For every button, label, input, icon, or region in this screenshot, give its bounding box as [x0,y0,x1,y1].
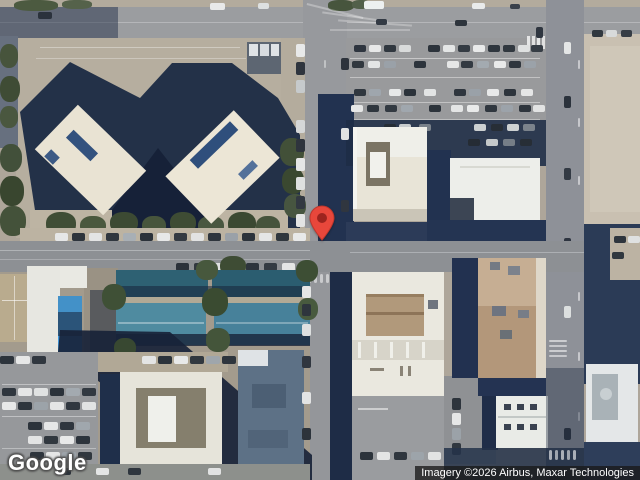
cars-ne-row [428,45,440,52]
cars-ne-row [368,61,380,68]
cars-c-col [452,413,461,425]
building-c-roofmark [400,366,403,376]
building-c-arcade [352,340,444,360]
cars-ne-row [401,105,413,112]
roof-ac-unit [518,310,529,318]
cars-ne-row [389,89,401,96]
nw-parking-stripe [36,58,246,59]
arcade-column [422,342,425,358]
tree [0,76,20,102]
building-sw-court-tab [148,396,176,442]
roof-vent [517,404,524,410]
rooftop-unit [260,44,269,56]
crosswalk-right-mid [549,350,567,352]
cars-ne-row [367,105,379,112]
car [536,27,543,38]
cars-center-east [341,58,349,70]
crosswalk-center-south [320,274,323,283]
crosswalk-right-bottom [567,450,570,460]
cars-ne-row [369,89,381,96]
crosswalk-right-mid [549,345,567,347]
lane-dashes-right [578,60,580,69]
cars-ne-row [458,45,470,52]
cars-sw-row [142,356,156,364]
cars-dirt-lot [592,30,603,37]
cars-ne-row [468,139,480,146]
attribution-text: Imagery ©2026 Airbus, Maxar Technologies [421,467,634,479]
cars-center-west [296,62,305,75]
cars-midroad-north [123,233,136,241]
cars-ne-row [474,124,486,131]
cars-sw-row [66,388,80,396]
ne-parking-stripe [350,102,540,103]
cars-ne-row [494,61,506,68]
crosswalk-right-bottom [561,450,564,460]
nw-parking-stripe [40,47,240,48]
building-c-roof-edge [366,294,424,297]
building-tan-east-edge [536,258,546,378]
building-se-white-mark [600,388,612,400]
cars-sw-row [34,402,48,410]
crosswalk-right-bottom [549,450,552,460]
car [510,4,520,9]
cars-alley [128,468,141,475]
cars-sw-row [50,388,64,396]
cars-center-south [302,428,311,440]
cars-midroad-north [174,233,187,241]
cars-alley [96,468,109,475]
cars-midroad-north [225,233,238,241]
arcade-column [406,342,409,358]
tree [0,176,24,206]
cars-center-east [341,200,349,212]
cars-midroad-north [276,233,289,241]
cars-sw-row [0,356,14,364]
car [364,1,384,9]
car [38,12,52,19]
lane-dashes-right [578,176,580,185]
cars-alley [208,468,221,475]
cars-ne-row [467,105,479,112]
cars-se-row [614,236,626,243]
cars-ne-row [491,124,503,131]
court-line [216,322,308,324]
cars-sw-row [158,356,172,364]
cars-sw-row [28,436,42,444]
cars-ne-row [507,124,519,131]
cars-c-col [452,428,461,440]
cars-ne-row [487,89,499,96]
cars-center-south [302,286,311,298]
tree [14,0,58,11]
cars-dirt-lot [606,30,617,37]
cars-ne-row [351,105,363,112]
cars-ne-row [443,45,455,52]
shadow-ne-b-south [427,220,546,242]
cars-sw-row [28,422,42,430]
cars-ne-row [447,61,459,68]
arcade-column [358,342,361,358]
building-tan-low [478,306,542,378]
cars-sw-row [174,356,188,364]
building-sw-blue-roof [238,350,268,366]
cars-center-west [296,44,305,57]
cars-center-south [302,324,311,336]
road-main-laneline [0,259,310,260]
cars-right-road [564,42,571,54]
cars-right-road [564,306,571,318]
cars-ne-row [518,45,530,52]
cars-ne-row [509,61,521,68]
cars-ne-row [385,105,397,112]
cars-center-west [296,196,305,209]
plaza-c-mark [358,408,388,410]
court-line [118,322,204,324]
crosswalk-right-mid [549,340,567,342]
car [210,3,225,10]
cars-center-west [296,120,305,133]
cars-sw-row [60,436,74,444]
cars-ne-row [469,89,481,96]
cars-ne-row [451,105,463,112]
arcade-column [390,342,393,358]
cars-center-west [296,214,305,227]
cars-ne-row [501,105,513,112]
court-sw-tan-line [2,300,28,301]
tree [206,328,230,352]
sw-parking-stripe [2,448,96,449]
building-sw-blue-detail [252,384,286,408]
google-logo[interactable]: Google [8,450,87,476]
cars-midroad-north [191,233,204,241]
cars-ne-row [354,89,366,96]
cars-c-bottom [428,452,441,460]
ne-parking-stripe [350,58,540,59]
cars-center-south [302,392,311,404]
tree [296,260,318,282]
building-c-roofmark [408,366,411,376]
shadow-tan-west [452,258,478,378]
building-ne-a-west-edge [353,127,357,221]
crosswalk-center-south [326,274,329,283]
cars-sw-row [60,422,74,430]
roof-vent [517,424,524,430]
building-c-roof-structure [366,294,424,336]
cars-ne-row [519,105,531,112]
imagery-attribution: Imagery ©2026 Airbus, Maxar Technologies [415,466,640,480]
cars-sw-row [206,356,220,364]
rooftop-unit [249,44,258,56]
cars-ne-row [521,89,533,96]
roof-ac-unit [500,330,512,339]
cars-c-bottom [360,452,373,460]
building-sw-blue [238,350,304,476]
cars-ne-row [429,105,441,112]
cars-sw-row [66,402,80,410]
car [472,3,485,9]
roof-vent [504,424,511,430]
cars-midroad-north [242,233,255,241]
cars-midroad-north [208,233,221,241]
road-main-laneline [0,250,310,251]
building-c-roofmark [370,368,384,371]
shadow-tan-south [478,378,546,396]
roof-vent [530,404,537,410]
building-c-roof-ridge [366,312,424,315]
map-canvas[interactable]: Google Imagery ©2026 Airbus, Maxar Techn… [0,0,640,480]
cars-center-south [302,356,311,368]
cars-sw-row [16,356,30,364]
cars-ne-row [454,89,466,96]
crosswalk-right-bottom [555,450,558,460]
cars-ne-row [520,139,532,146]
cars-midroad-north [259,233,272,241]
cars-sw-row [76,422,90,430]
building-c-roof-unit [428,300,438,309]
roof-vent [530,424,537,430]
roof-ac-unit [492,306,506,316]
cars-ne-row [486,139,498,146]
tree [102,284,126,310]
roof-ac-unit [508,266,520,275]
cars-ne-row [473,45,485,52]
car [455,20,467,26]
shadow-road-right-south [546,368,584,480]
building-sw-white [27,266,60,356]
sw-parking-stripe [2,384,96,385]
cars-ne-row [352,61,364,68]
cars-c-col [452,398,461,410]
arcade-column [374,342,377,358]
location-pin-icon[interactable] [309,205,335,241]
cars-sw-row [76,436,90,444]
building-ne-a-court-white [370,152,386,178]
cars-center-east [341,128,349,140]
cars-sw-row [34,388,48,396]
court-sw-tan [0,274,30,342]
cars-se-row [612,252,624,259]
cars-sw-row [44,422,58,430]
lane-dashes-right [578,118,580,127]
car [258,3,269,9]
cars-center-west [296,80,305,93]
cars-ne-row [533,105,545,112]
cars-ne-row [461,61,473,68]
court-sw-tan-line [14,276,15,340]
lane-dashes-right [578,352,580,361]
cars-sw-row [190,356,204,364]
building-ne-b-notch [450,198,474,220]
cars-se-row [628,236,640,243]
crosswalk-right-bottom [573,450,576,460]
cars-ne-row [524,61,536,68]
lot-dirt-east-inner [590,46,640,212]
tree [0,144,22,172]
cars-midroad-north [89,233,102,241]
cars-ne-row [354,45,366,52]
cars-sw-row [32,356,46,364]
cars-midroad-north [157,233,170,241]
ne-parking-stripe [350,77,540,78]
cars-center-west [296,158,305,171]
building-sw-blue-detail [248,430,288,448]
cars-midroad-north [55,233,68,241]
cars-center-west [296,139,305,152]
building-ne-b-roofline [460,166,530,168]
tree [202,288,228,316]
road-top-shadow [0,7,118,38]
cars-sw-row [2,402,16,410]
cars-ne-row [488,45,500,52]
cars-ne-row [523,124,535,131]
cars-ne-row [485,105,497,112]
cars-center-south [302,304,311,316]
cars-midroad-north [140,233,153,241]
sw-parking-stripe [2,416,96,417]
crosswalk-right-mid [549,355,567,357]
cars-ne-row [384,45,396,52]
cars-midroad-north [293,233,306,241]
cars-right-road [564,96,571,108]
cars-midroad-north [106,233,119,241]
building-c-small-line [498,416,546,418]
cars-midroad-north [72,233,85,241]
lane-dashes-right [578,292,580,301]
cars-dirt-lot [621,30,632,37]
tree [0,106,18,128]
cars-ne-row [503,45,515,52]
cars-c-bottom [377,452,390,460]
roof-vent [504,404,511,410]
tree [62,0,92,9]
cars-sw-row [18,388,32,396]
cars-ne-row [369,45,381,52]
cars-sw-row [18,402,32,410]
cars-ne-row [384,61,396,68]
tree [0,44,18,68]
cars-c-bottom [394,452,407,460]
cars-ne-row [399,45,411,52]
building-ne-a-top [353,127,427,157]
cars-sw-row [50,402,64,410]
roof-ac-unit [490,262,500,270]
car [376,19,387,25]
cars-sw-row [82,402,96,410]
cars-right-road [564,168,571,180]
cars-ne-row [504,89,516,96]
cars-center-west [296,177,305,190]
cars-ne-row [404,89,416,96]
rooftop-unit [271,44,279,56]
cars-c-bottom [411,452,424,460]
shadow-sw-court-west [100,374,120,466]
tree [196,260,218,280]
cars-ne-row [531,45,543,52]
building-ne-a-south-strip [353,209,427,221]
cars-sw-row [82,388,96,396]
cars-sw-row [44,436,58,444]
road-top-mark [330,29,410,31]
cars-ne-row [414,61,426,68]
cars-ne-row [424,89,436,96]
lane-dashes-center [324,60,326,68]
cars-sw-row [2,388,16,396]
cars-ne-row [503,139,515,146]
cars-sw-row [222,356,236,364]
cars-ne-row [477,61,489,68]
